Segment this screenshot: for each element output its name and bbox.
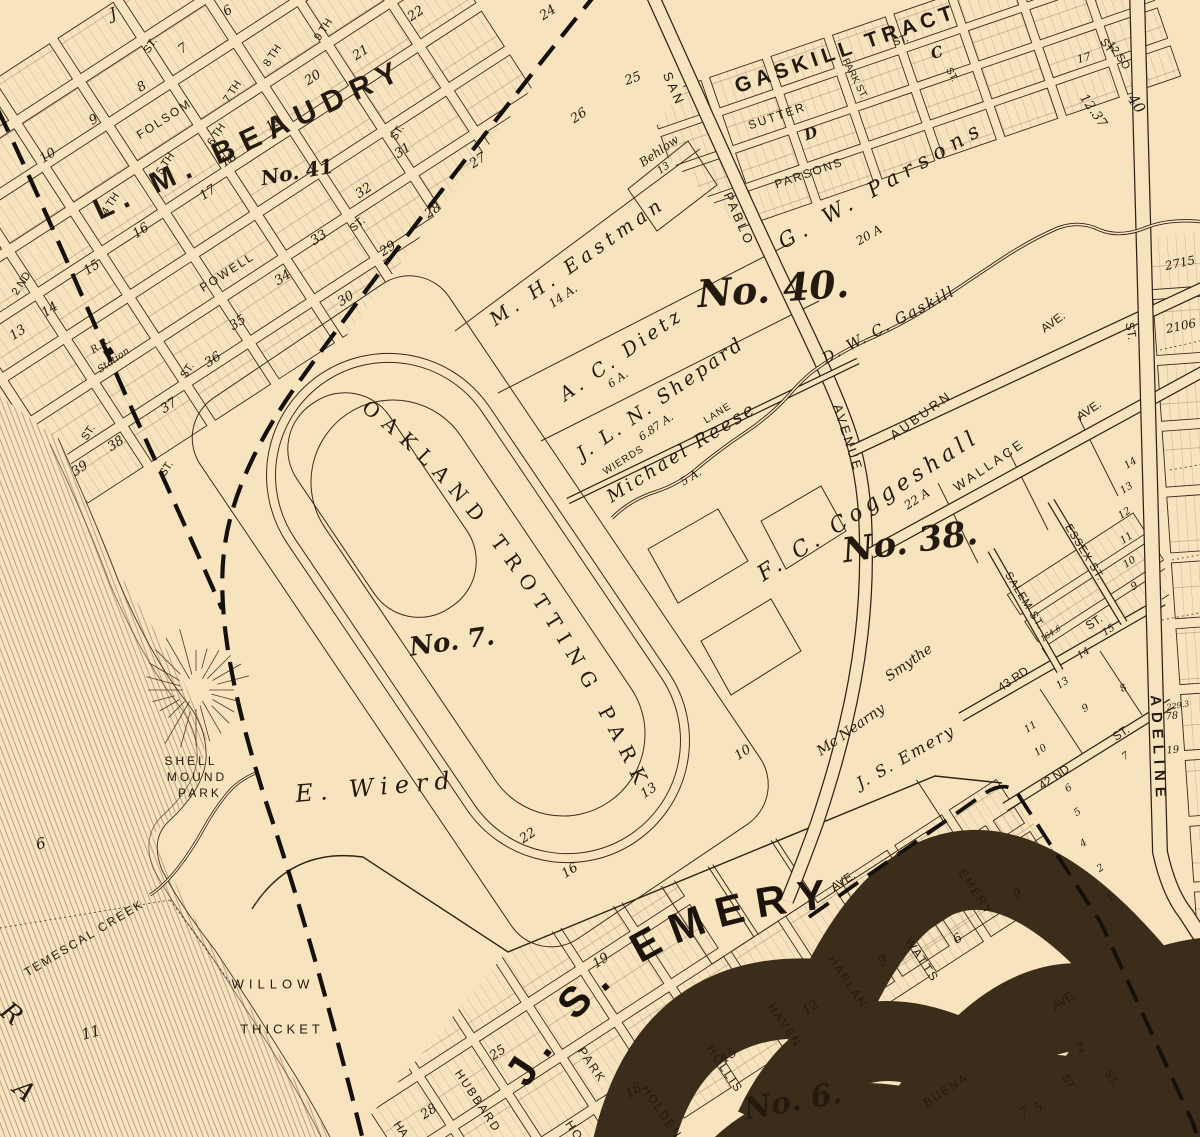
map-stage: OAKLAND TROTTING PARK J. S. EMERY L. M. … <box>0 0 1200 1137</box>
city-block <box>1181 688 1200 750</box>
city-block <box>1171 557 1200 619</box>
map-canvas: OAKLAND TROTTING PARK J. S. EMERY <box>0 0 1200 1137</box>
city-block <box>1176 622 1200 684</box>
city-block <box>1167 491 1200 553</box>
city-block <box>1162 425 1200 487</box>
